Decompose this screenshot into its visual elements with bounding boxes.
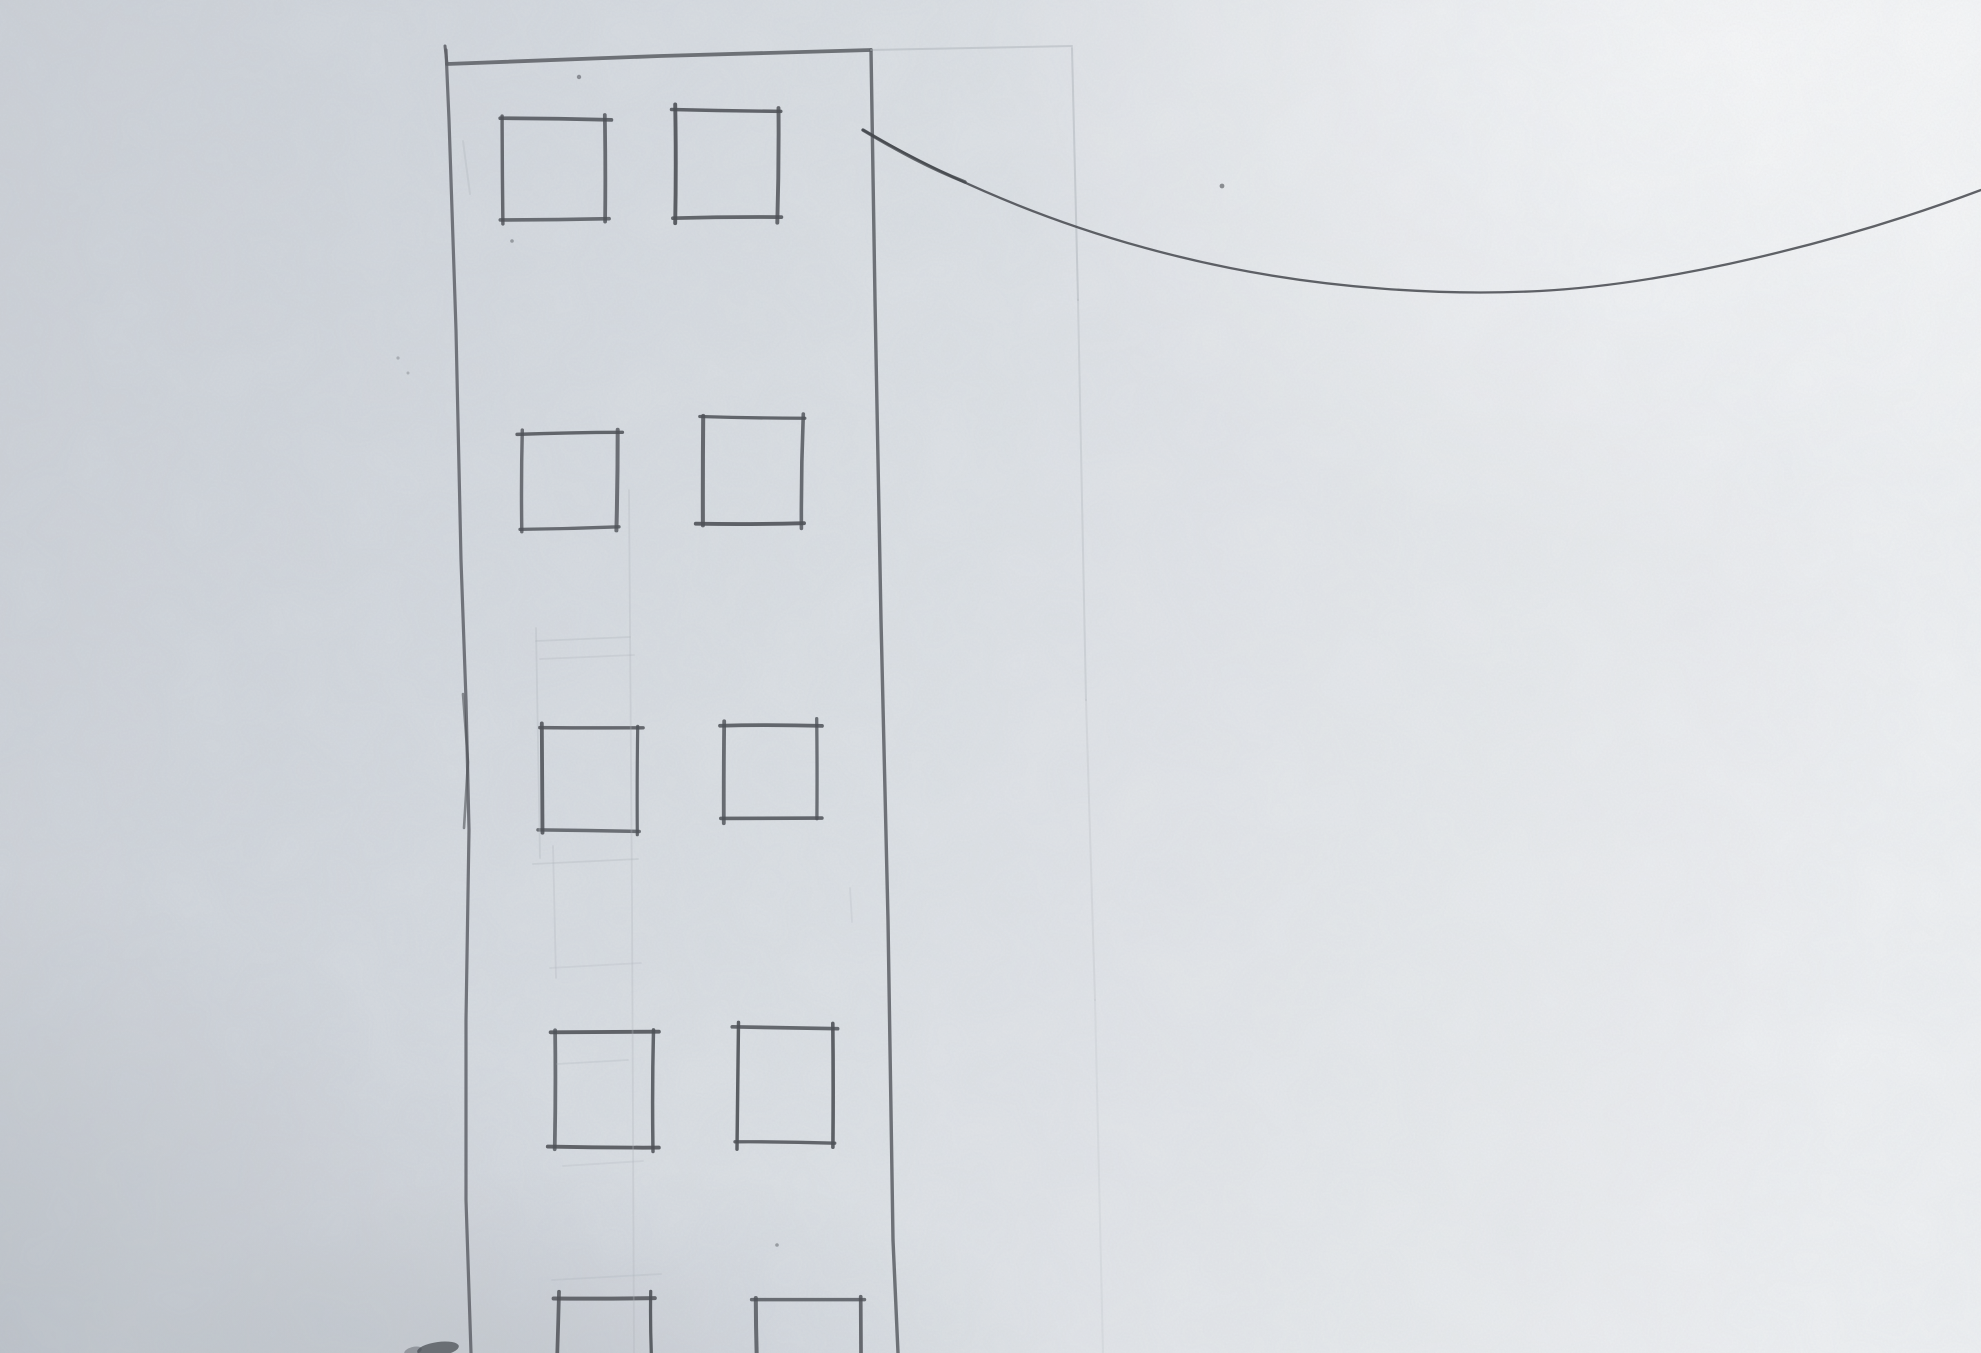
window-edge	[653, 1030, 654, 1152]
window-edge	[555, 1030, 556, 1149]
paper-speck	[775, 1243, 779, 1247]
window-edge	[756, 1298, 757, 1353]
window-edge	[732, 1027, 837, 1029]
window-edge	[737, 1022, 739, 1149]
window-edge	[696, 523, 804, 524]
paper-speck	[396, 356, 399, 359]
window-edge	[672, 110, 781, 112]
window-edge	[801, 414, 803, 528]
window-edge	[777, 108, 778, 223]
window-edge	[700, 417, 805, 419]
paper-texture	[0, 0, 1981, 1353]
window-edge	[616, 430, 617, 531]
paper-speck	[577, 75, 581, 79]
window-edge	[557, 1292, 559, 1353]
window-edge	[517, 432, 622, 434]
photo-of-pencil-sketch	[0, 0, 1981, 1353]
window-edge	[675, 105, 676, 224]
paper-speck	[1220, 184, 1225, 189]
window-edge	[551, 1032, 659, 1033]
paper-grain	[0, 0, 1981, 1353]
window-edge	[548, 1147, 659, 1148]
sketch-canvas	[0, 0, 1981, 1353]
window-edge	[502, 116, 503, 224]
paper-speck	[407, 372, 410, 375]
window-edge	[605, 115, 606, 222]
window-edge	[542, 723, 543, 832]
window-edge	[500, 219, 609, 220]
window-edge	[554, 1298, 655, 1299]
window-edge	[538, 830, 639, 832]
paper-speck	[510, 239, 514, 243]
window-edge	[500, 118, 611, 120]
window-edge	[735, 1142, 835, 1143]
window-edge	[720, 725, 822, 726]
window-edge	[651, 1291, 653, 1353]
window-edge	[521, 430, 522, 532]
window-edge	[637, 726, 638, 834]
window-edge	[673, 217, 782, 218]
